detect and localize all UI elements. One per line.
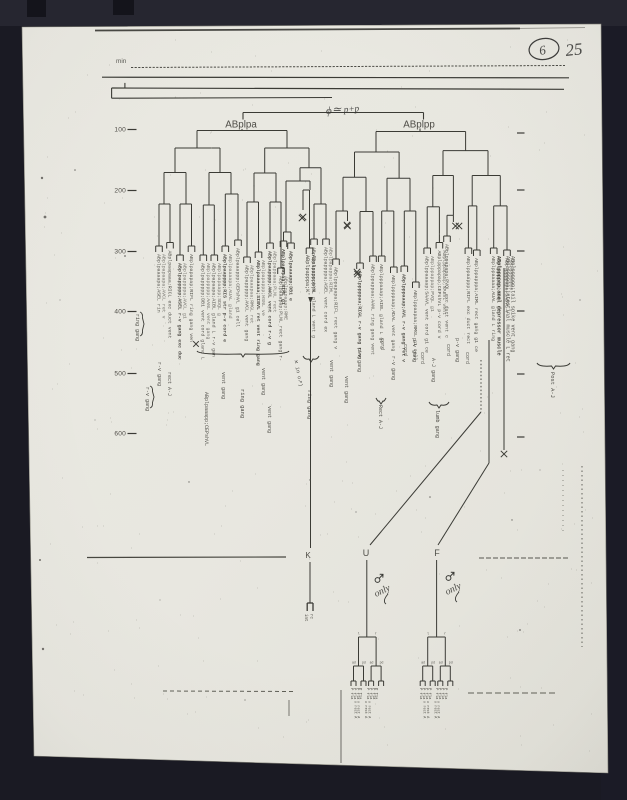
svg-text:ABplpappppa;ASEL vent cord ex: ABplpappppa;ASEL vent cord ex [322, 247, 328, 332]
svg-text:ad: ad [439, 661, 443, 665]
svg-text:Rect A-J: Rect A-J [377, 405, 383, 429]
svg-text:ABplpa: ABplpa [225, 120, 257, 131]
svg-text:A-J gang: A-J gang [430, 358, 436, 382]
svg-text:ABplpppaaap;AIBL gland L g1 c: ABplpppaaap;AIBL gland L g1 c [378, 264, 384, 349]
svg-text:F: F [434, 548, 440, 558]
svg-text:vent gang: vent gang [220, 372, 226, 399]
svg-text:ϕ≅: ϕ≅ [326, 105, 342, 117]
svg-text:ABplpapaapa;AIBL gland L r-v g: ABplpapaapa;AIBL gland L r-v gan [211, 263, 217, 357]
svg-text:ABplpappppa;AVCL g1: ABplpappppa;AVCL g1 [182, 263, 188, 319]
svg-text:pd: pd [380, 661, 384, 665]
svg-text:ABplpaapppp;RIS str p-v cord e: ABplpaapppp;RIS str p-v cord e [222, 254, 228, 342]
svg-text:ABplpapaapa;AVCL ret v: ABplpapaapa;AVCL ret v [161, 254, 167, 319]
svg-text:cord: cord [379, 338, 385, 350]
svg-text:pd: pd [362, 661, 366, 665]
svg-text:p-v gang: p-v gang [356, 348, 362, 372]
svg-text:vent gang: vent gang [343, 376, 349, 403]
svg-text:pd: pd [431, 661, 435, 665]
svg-text:ABplpapapap;RIFL ring gang ven: ABplpapapap;RIFL ring gang ven [188, 254, 194, 342]
svg-text:U: U [363, 548, 370, 558]
svg-text:cord: cord [464, 352, 470, 364]
svg-text:P fla: P fla [443, 688, 448, 700]
svg-text:r-v gang: r-v gang [390, 356, 396, 380]
svg-text:ABplpaaapp;CEPshVL: ABplpaaapp;CEPshVL [203, 392, 209, 446]
svg-text:ABplpppppp;tail spike vent gan: ABplpppppp;tail spike vent gang [510, 256, 516, 353]
svg-text:P fla: P fla [374, 688, 379, 700]
svg-text:P fla: P fla [358, 688, 363, 700]
svg-text:ABplpaaaaaa;SIBVL ret vent rin: ABplpaaaaaa;SIBVL ret vent ring gang [255, 260, 261, 366]
svg-text:ring gang: ring gang [306, 390, 312, 419]
svg-text:pd: pd [449, 661, 453, 665]
svg-text:P fla: P fla [427, 688, 432, 700]
svg-text:ABplppapppa;AIML rect gang g1: ABplppapppa;AIML rect gang g1 ce [473, 258, 479, 352]
svg-text:p-v gang: p-v gang [411, 338, 417, 362]
svg-text:500: 500 [114, 370, 126, 377]
svg-text:vent gang: vent gang [260, 368, 266, 395]
svg-text:r-v gang: r-v gang [144, 387, 150, 411]
svg-text:200: 200 [114, 187, 126, 194]
svg-text:ABplpappppp;ASEL r-v gang exc: ABplpappppp;ASEL r-v gang exc duc [176, 263, 182, 360]
svg-text:x rect A: x rect A [436, 701, 441, 719]
svg-text:int: int [303, 614, 308, 622]
svg-text:cord: cord [402, 344, 408, 356]
svg-text:ABplpappaaa;PLNL rect: ABplpappaaa;PLNL rect [272, 251, 278, 313]
svg-text:ABplppaaaaa;AUAL gland L ring: ABplppaaaaa;AUAL gland L ring [490, 256, 496, 341]
svg-text:100: 100 [114, 126, 126, 133]
svg-text:ABplpappppp;DB1 vent cord glan: ABplpappppp;DB1 vent cord gland L [200, 263, 206, 360]
svg-text:r: r [444, 632, 446, 637]
svg-text:cord: cord [445, 344, 451, 356]
svg-text:ABplpapaaap;RME: ABplpapaaap;RME [283, 276, 289, 320]
svg-text:x rect A: x rect A [367, 701, 372, 719]
svg-text:vent gang: vent gang [328, 360, 334, 387]
svg-text:r-v gang: r-v gang [156, 362, 162, 386]
svg-text:cord: cord [419, 352, 425, 364]
svg-text:ABplpapappp;HSNL ve: ABplpapappp;HSNL ve [260, 260, 266, 316]
svg-text:ABplpaapaaa;RICL exc duct vent: ABplpaapaaa;RICL exc duct vent [166, 251, 172, 339]
svg-text:ABplpapppp;K: ABplpapppp;K [310, 255, 316, 293]
svg-text:ABplppaappp;RIFL exc duct rect: ABplppaappp;RIFL exc duct rect [465, 256, 471, 344]
svg-text:ad: ad [421, 661, 425, 665]
svg-text:ABplppappaa;AANL ring gang ven: ABplppappaa;AANL ring gang vent [369, 264, 375, 355]
svg-text:rc: rc [309, 614, 313, 620]
svg-text:ring gang: ring gang [239, 389, 245, 418]
svg-text:p+p: p+p [342, 103, 360, 114]
svg-text:ABplppapapa;PVQL exc duct vent: ABplppapapa;PVQL exc duct vent c [443, 244, 449, 338]
svg-text:ABplppappap;PVQL g1: ABplppappap;PVQL g1 [429, 256, 435, 312]
svg-text:Post A-J: Post A-J [549, 372, 555, 398]
svg-text:ABplppppap;anal depressor musc: ABplppppap;anal depressor muscle [496, 256, 502, 356]
svg-text:r: r [375, 632, 377, 637]
svg-text:x rect A: x rect A [356, 701, 361, 719]
svg-text:ABplpapaapp;SDQL g: ABplpapaapp;SDQL g [216, 263, 222, 316]
svg-text:ad: ad [352, 661, 356, 665]
svg-text:ABplpaaaapa;AUAL gland: ABplpaaaapa;AUAL gland [227, 254, 233, 319]
svg-text:ABplppaaaap;SAAVL vent cord g1: ABplppaaaap;SAAVL vent cord g1 ce [424, 256, 430, 353]
svg-text:ad: ad [370, 661, 374, 665]
svg-text:ABplpaaapap;PLNL rect gang r-: ABplpaaapap;PLNL rect gang r- [277, 276, 283, 361]
svg-text:rect A-J: rect A-J [166, 372, 172, 396]
svg-text:K: K [305, 551, 311, 560]
svg-text:p-v gang: p-v gang [454, 338, 460, 362]
svg-text:vent gang: vent gang [266, 406, 272, 433]
svg-text:ABplpaaaapa;ASEL rin: ABplpaaaapa;ASEL rin [155, 254, 161, 313]
svg-text:ABplpaaapaa;RMGL ret: ABplpaaapaa;RMGL ret [249, 265, 255, 324]
svg-text:l: l [427, 632, 429, 637]
svg-text:ABplpppppaa;RIGL r-v gang ring: ABplpppppaa;RIGL r-v gang ring [356, 271, 362, 359]
svg-text:x rect A: x rect A [425, 701, 430, 719]
svg-text:ABplppppaap;ADAL vent gang: ABplppppaap;ADAL vent gang [390, 275, 396, 351]
svg-text:ABplpappppp;AANL vent gang: ABplpappppp;AANL vent gang [205, 263, 211, 339]
svg-text:ABplppapapa;RIFL rect gang v: ABplppapapa;RIFL rect gang v [332, 267, 338, 349]
svg-text:400: 400 [114, 308, 126, 315]
svg-text:ABplpp: ABplpp [403, 120, 435, 131]
svg-text:ring gang: ring gang [134, 314, 140, 341]
svg-text:ABplpaaappp;CEPshVL g1 cell: ABplpaaappp;CEPshVL g1 cell [234, 248, 240, 327]
svg-text:min: min [116, 58, 127, 65]
svg-text:600: 600 [114, 430, 126, 437]
svg-text:l: l [358, 632, 360, 637]
svg-text:ABplpppapap;CEPshVL p-v cord v: ABplpppapap;CEPshVL p-v cord v [436, 251, 442, 339]
svg-text:ABplpapppa;K′: ABplpapppa;K′ [304, 255, 310, 295]
svg-text:lumb gang: lumb gang [434, 410, 440, 438]
svg-text:300: 300 [114, 248, 126, 255]
svg-text:ABplpappppp;AVCL vent gang: ABplpappppp;AVCL vent gang [243, 265, 249, 341]
svg-text:25: 25 [564, 39, 583, 60]
svg-text:ABplpaapppp;AWCL vent cord r-v: ABplpaapppp;AWCL vent cord r-v g [266, 251, 272, 345]
